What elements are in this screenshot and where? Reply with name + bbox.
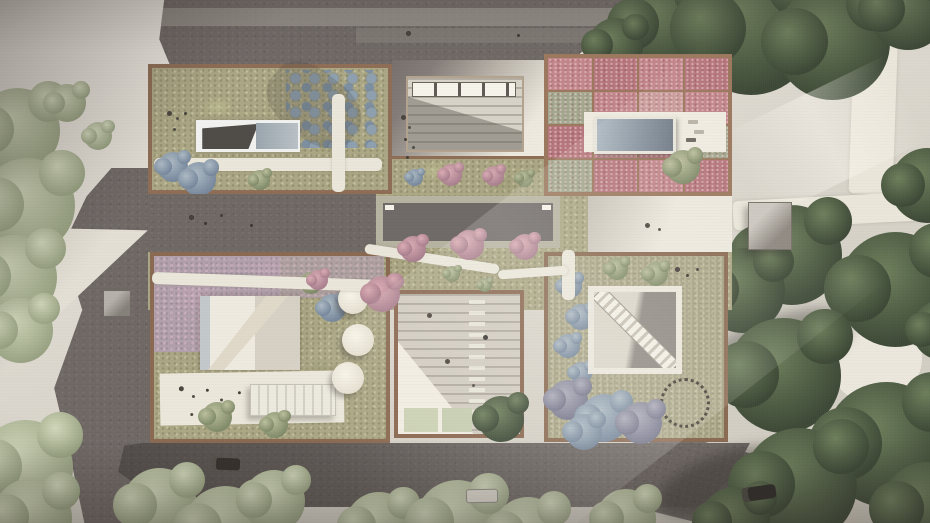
roof-tree-sage [516, 170, 533, 187]
aerial-architectural-rendering [0, 0, 930, 523]
gap-east [588, 196, 732, 252]
pedestrian-dots [407, 32, 410, 35]
patio-umbrella [332, 362, 364, 394]
roof-tree-sage [644, 262, 668, 286]
garden-tree-pink [512, 234, 538, 260]
roof-tree-sage [250, 170, 270, 190]
court-corner-mark [542, 205, 551, 210]
street-tree [48, 84, 86, 122]
street-tree [84, 122, 112, 150]
glass-skylight-box [594, 116, 676, 154]
garden-tree-sage [478, 278, 492, 292]
wing-red-sedum [544, 54, 732, 196]
garden-tree-pink [400, 236, 426, 262]
roof-tree-blue [406, 169, 423, 186]
street-lane-stripe [152, 8, 638, 26]
roof-tree-sage [202, 402, 232, 432]
car [466, 489, 498, 504]
courtyard-north [392, 60, 544, 194]
diagonal-ramp [594, 292, 676, 368]
roof-tree-blue [566, 414, 602, 450]
red-roof-court [584, 112, 726, 152]
wing-central-roof [394, 290, 524, 438]
garden-tree-sage [444, 266, 460, 282]
street-tree [243, 470, 305, 523]
roof-tree-pink [484, 166, 504, 186]
striped-canopy [250, 384, 336, 416]
pedestrian-dots [190, 216, 193, 219]
skylight-shadow [202, 124, 258, 150]
roof-marks [428, 314, 431, 317]
ribbed-house-roof [406, 76, 524, 152]
garden-tree-pink [454, 230, 484, 260]
sedum-cell [548, 160, 592, 192]
sedum-cell [548, 58, 592, 90]
car [212, 458, 240, 471]
sidewalk-kiosk [748, 202, 792, 250]
garden-path [562, 250, 575, 300]
building-complex [148, 54, 732, 447]
court-wall-left [200, 296, 210, 370]
skylight-row [412, 82, 516, 97]
sedum-cell [594, 58, 638, 90]
garden-tree-pink [364, 276, 400, 312]
roof-tree-dark [478, 396, 524, 442]
roof-tree-pink [440, 164, 462, 186]
roof-furniture-marks [688, 120, 698, 124]
roof-tree-sage [606, 258, 628, 280]
roof-tree-blue [182, 162, 216, 196]
pedestrian-dots [402, 116, 405, 119]
roof-panel-green [404, 408, 438, 432]
roof-tree-blue [556, 334, 580, 358]
courtyard-se [594, 292, 676, 368]
sedum-cell [594, 160, 638, 192]
plaza-kiosk [103, 290, 131, 317]
skylight-strip [196, 120, 300, 152]
courtyard-veg-strip [392, 156, 544, 197]
sedum-cell [639, 58, 683, 90]
sedum-cell [685, 58, 729, 90]
patio-umbrella [342, 324, 374, 356]
roof-path [332, 94, 345, 192]
roof-tree-sage [666, 150, 700, 184]
corridor-street [148, 194, 376, 252]
street-tree [0, 298, 53, 363]
pedestrian-dots [168, 112, 171, 115]
roof-tree-blue [568, 304, 594, 330]
court-corner-mark [385, 205, 394, 210]
wing-top-left [148, 64, 392, 194]
bench-circle [660, 378, 710, 428]
pedestrian-dots [180, 387, 183, 390]
roof-marks [676, 268, 679, 271]
roof-panel-green [442, 408, 472, 432]
street-tree [0, 478, 72, 523]
skylight-glass [256, 123, 298, 149]
garden-tree-pink [308, 270, 328, 290]
courtyard-sw [200, 296, 300, 370]
roof-tree-lavender [620, 402, 662, 444]
pedestrian-dots [646, 224, 649, 227]
roof-tree-sage [262, 412, 288, 438]
